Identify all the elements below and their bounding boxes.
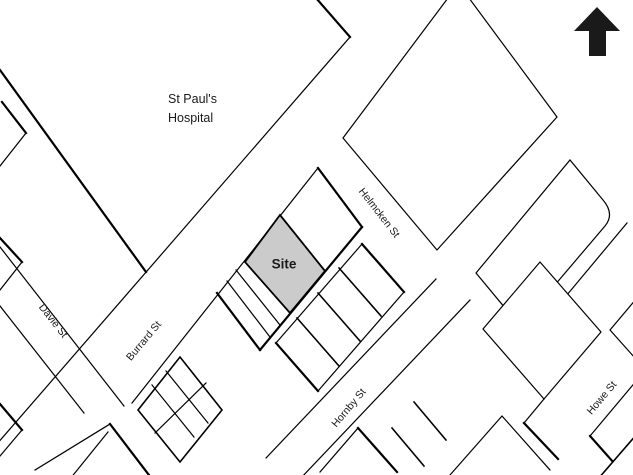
parcel-line xyxy=(0,430,22,456)
block-corner xyxy=(450,416,550,475)
street-edge-line xyxy=(0,70,146,272)
site-label: Site xyxy=(272,257,297,272)
block-corner xyxy=(320,428,358,472)
site-block-sw-edge xyxy=(217,293,260,350)
parcel-line xyxy=(0,238,22,262)
parcel-line xyxy=(414,402,446,440)
street-map-drawing xyxy=(0,0,633,475)
davie-sw-edge xyxy=(0,306,84,413)
parcel-line xyxy=(0,262,22,290)
parcel-line xyxy=(2,102,26,133)
hospital-area-label: St Paul's Hospital xyxy=(168,90,217,129)
howe-nw-edge xyxy=(524,423,558,459)
block-corner xyxy=(35,424,110,470)
block-corner xyxy=(358,428,397,472)
parcel-line xyxy=(392,428,424,466)
parcel-line xyxy=(0,133,26,166)
hospital-label-line1: St Paul's xyxy=(168,90,217,109)
parcel-line xyxy=(227,281,270,337)
parcel-line xyxy=(0,404,22,430)
north-arrow-icon xyxy=(574,7,620,56)
block-corner xyxy=(610,298,633,358)
site-location-map: St Paul's Hospital Site Helmcken St Burr… xyxy=(0,0,633,475)
site-block-ne-edge xyxy=(318,168,362,227)
burrard-se-edge xyxy=(70,432,108,475)
small-lot-cluster xyxy=(138,357,222,462)
corner-block xyxy=(598,434,633,475)
street-edge-line xyxy=(316,0,350,37)
block-corner xyxy=(110,424,152,475)
howe-nw-edge xyxy=(524,399,544,423)
hospital-label-line2: Hospital xyxy=(168,109,217,128)
